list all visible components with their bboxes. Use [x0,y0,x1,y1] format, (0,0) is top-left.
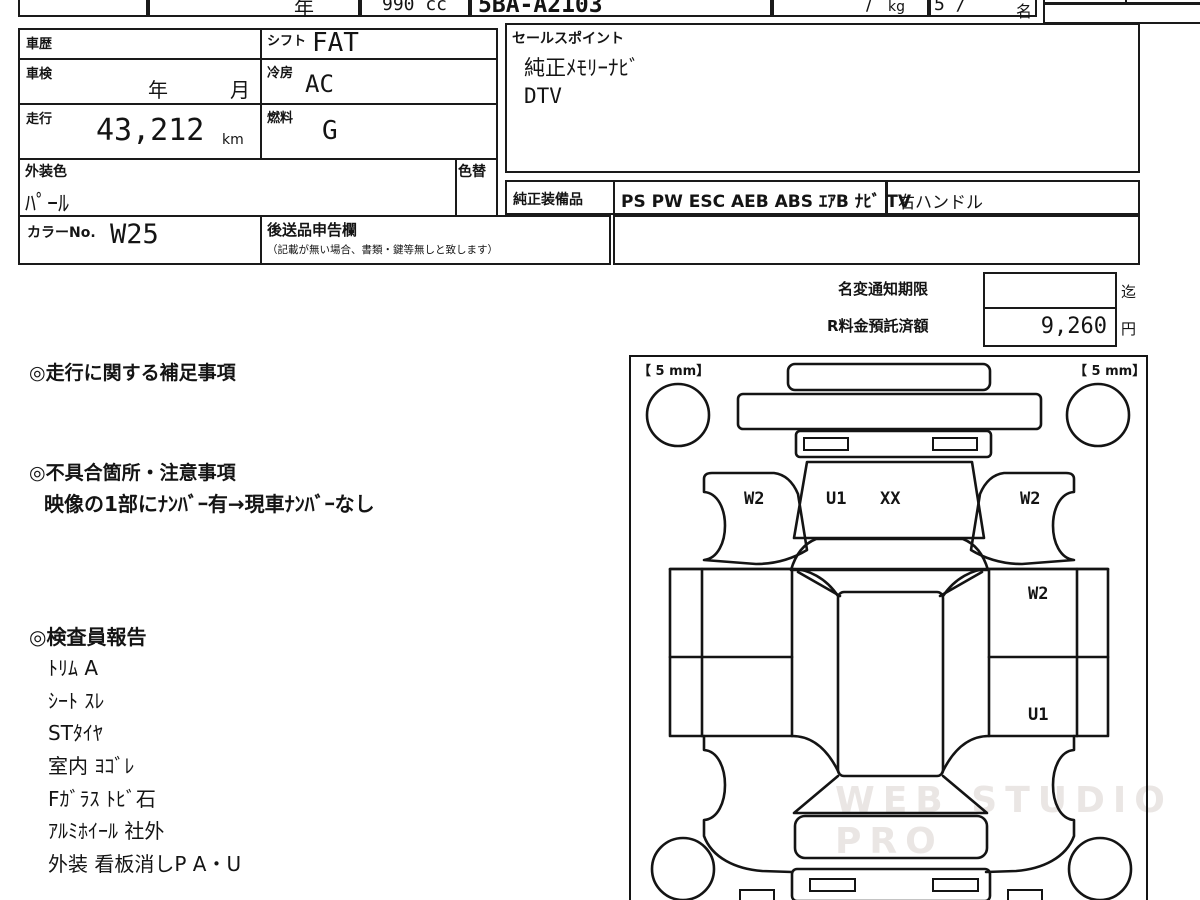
year-label: 年 [294,0,314,21]
front-plate-left [804,438,848,450]
rear-bottom-part-left [740,890,774,900]
equipment-value: PS PW ESC AEB ABS ｴｱB ﾅﾋﾞ TV [621,187,911,212]
inspection-label: 車検 [26,63,52,82]
shift-value: FAT [312,28,359,58]
fuel-label: 燃料 [267,107,293,126]
damage-marker: W2 [1028,584,1048,604]
rear-wheel-left [652,838,714,900]
front-plate-strip [796,431,991,457]
top-right-box [1043,3,1200,24]
rear-window-flare [794,776,987,813]
inspector-item: ｼｰﾄ ｽﾚ [48,685,104,714]
rear-fender-right [986,736,1074,872]
deposit-label: R料金預託済額 [827,315,929,336]
history-cell [18,28,262,60]
front-wheel-left [647,384,709,446]
c-pillar-curve-right [942,736,989,773]
damage-marker: XX [880,489,901,509]
inspector-item: ﾄﾘﾑ A [48,652,98,681]
inspection-month: 月 [230,74,250,103]
ac-label: 冷房 [267,62,293,81]
ac-value: AC [305,70,334,98]
defect-title: ◎不具合箇所・注意事項 [29,458,236,485]
mileage-label: 走行 [26,108,52,127]
front-plate-right [933,438,977,450]
mileage-note-title: ◎走行に関する補足事項 [29,358,236,385]
rear-glass-band [795,816,987,858]
inspection-year: 年 [148,74,168,103]
lower-right-empty-cell [613,215,1140,265]
windshield-band [791,539,988,570]
rename-deadline-box [983,272,1117,309]
side-panel-right [989,569,1108,736]
ac-cell [260,58,498,105]
color-no-label: カラーNo. [27,222,96,242]
tread-depth-right: 【 5 mm】 [1074,363,1145,379]
c-pillar-curve-left [792,736,839,773]
auction-sheet-scan: { "top_row": { "year": "年", "displacemen… [0,0,1200,900]
damage-marker: U1 [826,489,846,509]
rename-deadline-suffix: 迄 [1121,281,1136,302]
windshield-pillar-left [798,572,840,596]
front-bumper [738,394,1041,429]
displacement-value: 990 cc [382,0,447,15]
top-left-empty-cell [18,0,148,17]
defect-note: 映像の1部にﾅﾝﾊﾞｰ有→現車ﾅﾝﾊﾞｰなし [44,488,375,517]
rear-wheel-right [1069,838,1131,900]
inspector-item: STﾀｲﾔ [48,717,103,746]
history-label: 車歴 [26,33,52,52]
rear-plate-left [810,879,855,891]
inspector-item: 外装 看板消しP A・U [48,848,241,877]
rear-fender-left [704,736,792,872]
rear-bottom-part-right [1008,890,1042,900]
top-weight-cell [772,0,929,17]
rename-deadline-label: 名変通知期限 [838,278,928,299]
weight-unit: kg [888,0,905,15]
repaint-label: 色替 [458,161,486,181]
mileage-unit: km [222,132,244,148]
inspector-title: ◎検査員報告 [29,621,146,650]
inspection-cell [18,58,262,105]
okuri-label: 後送品申告欄 [267,219,357,240]
shift-label: シフト [267,30,306,49]
damage-marker: U1 [1028,705,1048,725]
color-label: 外装色 [25,161,67,181]
inspector-item: 室内 ﾖｺﾞﾚ [48,750,134,779]
damage-marker: W2 [744,489,764,509]
deposit-box: 9,260 [983,307,1117,347]
deposit-suffix: 円 [1121,318,1136,339]
roof-panel [838,592,943,776]
model-code-value: 5BA-A2103 [478,0,603,18]
color-cell [18,158,498,217]
front-fender-right [971,473,1074,564]
fuel-cell [260,103,498,160]
weight-slash: / [866,0,872,15]
color-no-value: W25 [110,219,159,250]
fuel-value: G [322,116,338,146]
sales-point-label: セールスポイント [512,28,624,48]
color-value: ﾊﾟｰﾙ [25,186,69,218]
okuri-note: （記載が無い場合、書類・鍵等無しと致します） [267,242,498,257]
deposit-value: 9,260 [1041,314,1107,339]
side-panel-left [670,569,792,736]
front-top-strip [788,364,990,390]
sales-point-line2: DTV [524,84,562,108]
damage-marker: W2 [1020,489,1040,509]
inspector-item: ｱﾙﾐﾎｲｰﾙ 社外 [48,815,164,844]
equipment-label: 純正装備品 [513,189,583,209]
capacity-value: 5 / [934,0,967,15]
front-fender-left [704,473,807,564]
mileage-value: 43,212 [96,113,204,148]
rear-plate-right [933,879,978,891]
capacity-unit: 名 [1016,0,1032,22]
handle-value: 右ハンドル [898,188,983,213]
top-year-cell [148,0,360,17]
rear-bumper [792,869,990,900]
tread-depth-left: 【 5 mm】 [638,363,709,379]
sales-point-line1: 純正ﾒﾓﾘｰﾅﾋﾞ [524,52,640,82]
car-damage-diagram: 【 5 mm】 【 5 mm】 W2 U1 XX W2 W2 U1 [628,352,1150,900]
inspector-item: Fｶﾞﾗｽ ﾄﾋﾞ石 [48,783,156,812]
front-wheel-right [1067,384,1129,446]
